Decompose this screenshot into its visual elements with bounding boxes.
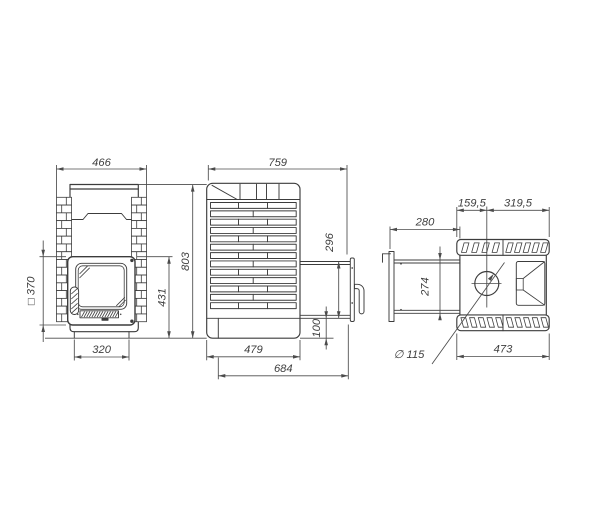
flange-bolt-dot: [351, 302, 353, 304]
dim-top-tunnel-width: 274: [420, 247, 442, 321]
drawing-canvas: 466 □ 370 320 431: [0, 0, 600, 516]
dim-top-flue-position: 159,5 319,5: [457, 198, 549, 238]
stone-chute: [516, 262, 545, 306]
dim-front-base-width: 320: [74, 340, 129, 361]
top-view: [383, 207, 550, 331]
dim-side-opening-height: 296: [324, 232, 341, 318]
dim-label-280: 280: [415, 217, 435, 229]
pedestal: [74, 332, 129, 339]
vent-end-dot: [77, 314, 79, 316]
dim-label-115: ∅ 115: [394, 349, 425, 361]
dim-label-274: 274: [420, 277, 432, 297]
dim-label-319-5: 319,5: [504, 198, 533, 210]
dim-label-296: 296: [324, 232, 336, 252]
dim-label-466: 466: [92, 157, 111, 169]
door-hinge-dot: [130, 259, 133, 262]
stone-tray-rim: [72, 214, 137, 220]
dim-label-100: 100: [311, 318, 323, 337]
dim-label-370: □ 370: [26, 276, 38, 305]
fire-door: [68, 257, 135, 325]
flange-bolt-dot: [400, 263, 402, 265]
dim-label-320: 320: [92, 344, 111, 356]
dim-label-479: 479: [244, 344, 263, 356]
top-band-diagonal: [212, 185, 237, 199]
convection-slats: [211, 203, 297, 309]
front-view: [57, 185, 147, 339]
dim-label-431: 431: [157, 288, 169, 307]
top-plate: [70, 185, 138, 190]
dim-side-bottom-offset: 100: [300, 307, 334, 350]
door-hinge-dot: [130, 320, 133, 323]
door-flange-top: [389, 252, 394, 322]
dim-label-159-5: 159,5: [458, 198, 487, 210]
dim-label-803: 803: [180, 251, 192, 270]
flange-bolt-dot: [400, 309, 402, 311]
door-latch: [102, 318, 109, 321]
flange-bolt-dot: [351, 267, 353, 269]
stove-technical-drawing: 466 □ 370 320 431: [0, 0, 600, 516]
side-view: [207, 183, 364, 338]
dim-label-684: 684: [274, 363, 293, 375]
vent-end-dot: [120, 314, 122, 316]
top-band-segments: [240, 184, 279, 199]
dim-top-body-width: 473: [457, 334, 549, 361]
dim-label-759: 759: [268, 157, 287, 169]
dim-side-body-depth: 479: [207, 340, 300, 360]
dim-label-473: 473: [494, 344, 513, 356]
door-handle-side: [355, 284, 365, 314]
dim-top-tunnel-length: 280: [390, 217, 460, 249]
dim-side-depth-with-tunnel: 684: [218, 325, 348, 380]
